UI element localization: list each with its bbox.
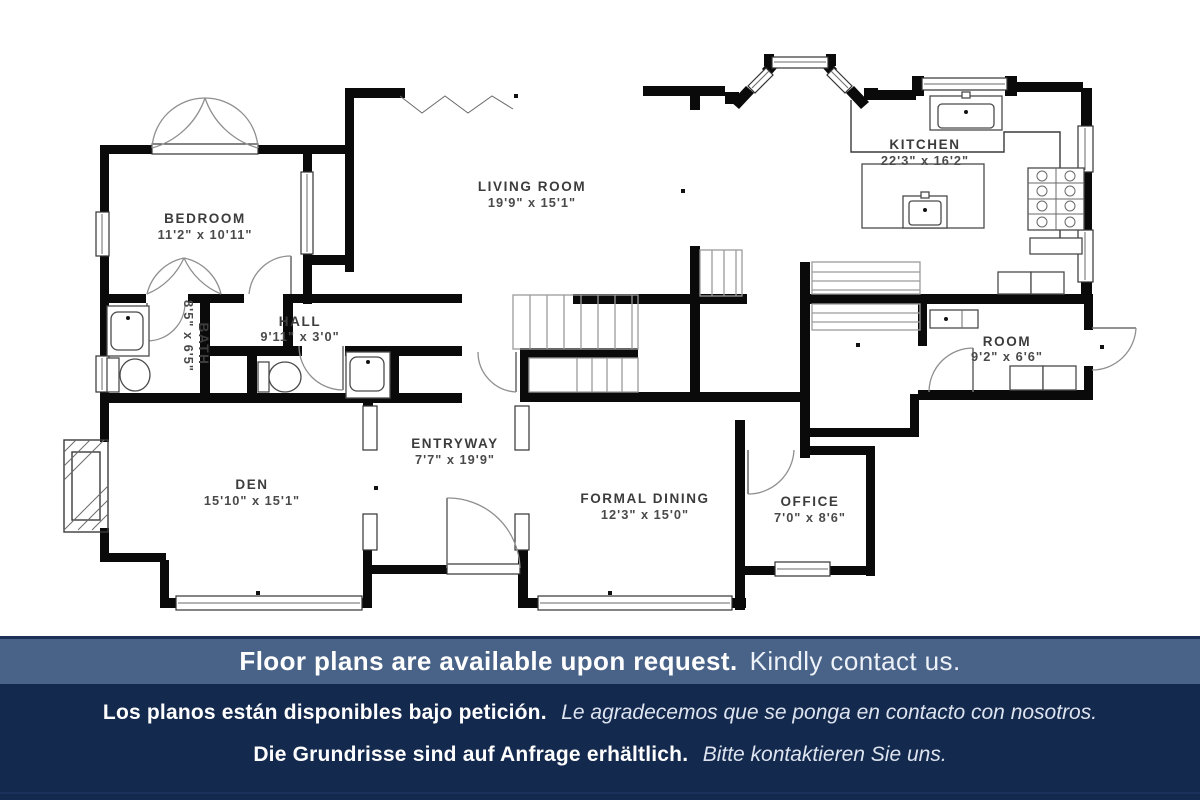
banner-spanish-bold-text: Los planos están disponibles bajo petici… — [103, 701, 547, 724]
floor-plan: BEDROOM 11'2" x 10'11" LIVING ROOM 19'9"… — [0, 0, 1200, 636]
label-entryway: ENTRYWAY — [411, 436, 499, 451]
label-bedroom: BEDROOM — [164, 211, 246, 226]
label-office: OFFICE — [780, 494, 839, 509]
staircase — [513, 250, 742, 392]
label-office-dims: 7'0" x 8'6" — [774, 510, 846, 525]
banner-primary-bold-text: Floor plans are available upon request. — [239, 646, 737, 677]
label-entryway-dims: 7'7" x 19'9" — [415, 452, 495, 467]
floor-plan-drawing: BEDROOM 11'2" x 10'11" LIVING ROOM 19'9"… — [0, 0, 1200, 636]
flyer-page: BEDROOM 11'2" x 10'11" LIVING ROOM 19'9"… — [0, 0, 1200, 800]
wall-break-symbol — [400, 96, 513, 113]
label-formal-dining: FORMAL DINING — [580, 491, 709, 506]
banner-german-bold-text: Die Grundrisse sind auf Anfrage erhältli… — [253, 743, 688, 766]
banner-spanish-italic-text: Le agradecemos que se ponga en contacto … — [561, 701, 1097, 724]
toilet — [120, 359, 150, 391]
label-formal-dining-dims: 12'3" x 15'0" — [601, 507, 689, 522]
laundry-sink — [930, 310, 978, 328]
toilet-2 — [269, 362, 301, 392]
label-living-room-dims: 19'9" x 15'1" — [488, 195, 576, 210]
label-hall-dims: 9'11" x 3'0" — [260, 329, 339, 344]
label-bath-dims: 8'5" x 6'5" — [181, 300, 196, 372]
banner-german-italic-text: Bitte kontaktieren Sie uns. — [703, 743, 947, 766]
banner-translations: Los planos están disponibles bajo petici… — [0, 684, 1200, 800]
kitchen-sink — [938, 104, 994, 128]
banner-german-line: Die Grundrisse sind auf Anfrage erhältli… — [0, 743, 1200, 767]
label-living-room: LIVING ROOM — [478, 179, 586, 194]
fireplace — [64, 440, 108, 532]
label-hall: HALL — [279, 314, 321, 329]
banner-primary: Floor plans are available upon request. … — [0, 636, 1200, 684]
label-kitchen: KITCHEN — [889, 137, 960, 152]
label-kitchen-dims: 22'3" x 16'2" — [881, 153, 969, 168]
banner-bottom-edge-line — [0, 792, 1200, 794]
label-den-dims: 15'10" x 15'1" — [204, 493, 300, 508]
label-bedroom-dims: 11'2" x 10'11" — [158, 227, 253, 242]
label-room-dims: 9'2" x 6'6" — [971, 349, 1043, 364]
label-den: DEN — [235, 477, 268, 492]
banner-primary-regular-text: Kindly contact us. — [750, 646, 961, 677]
banner-spanish-line: Los planos están disponibles bajo petici… — [0, 701, 1200, 725]
label-bath: BATH — [196, 323, 211, 366]
label-room: ROOM — [983, 334, 1031, 349]
stove — [1028, 168, 1084, 230]
island-sink — [909, 201, 941, 225]
